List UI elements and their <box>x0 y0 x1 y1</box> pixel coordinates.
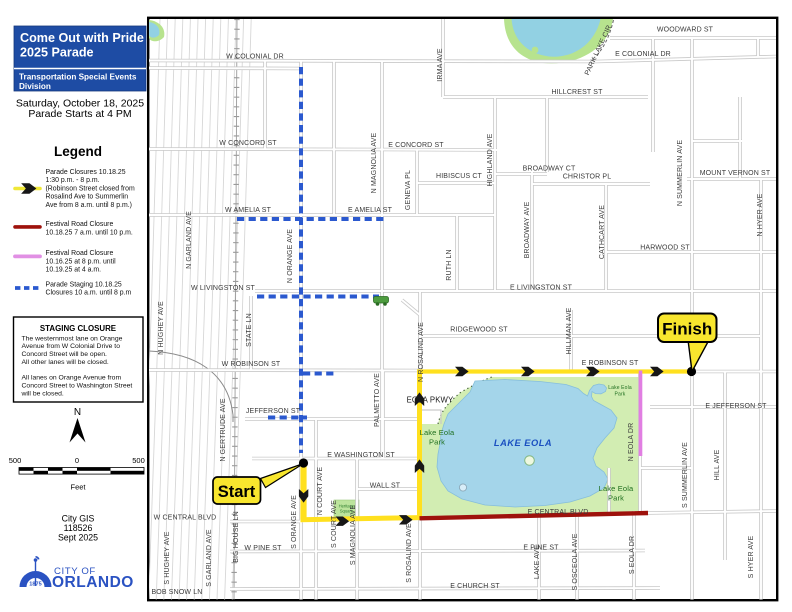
svg-text:S ORANGE AVE: S ORANGE AVE <box>291 495 298 549</box>
svg-text:500: 500 <box>132 456 145 465</box>
svg-text:N HUGHEY AVE: N HUGHEY AVE <box>158 301 165 355</box>
svg-text:IRMA AVE: IRMA AVE <box>437 48 444 82</box>
svg-text:N: N <box>74 407 81 418</box>
svg-text:Rosalind Ave to Summerlin: Rosalind Ave to Summerlin <box>46 194 129 201</box>
svg-text:BROADWAY AVE: BROADWAY AVE <box>524 201 531 258</box>
svg-text:HILLMAN AVE: HILLMAN AVE <box>566 307 573 354</box>
svg-text:N ROSALIND AVE: N ROSALIND AVE <box>418 322 425 382</box>
svg-text:W CONCORD ST: W CONCORD ST <box>219 140 277 147</box>
svg-text:Parade Staging 10.18.25: Parade Staging 10.18.25 <box>46 281 122 288</box>
svg-text:STATE LN: STATE LN <box>246 313 253 347</box>
svg-text:E COLONIAL DR: E COLONIAL DR <box>615 51 671 58</box>
svg-text:HIBISCUS CT: HIBISCUS CT <box>436 173 483 180</box>
svg-text:N SUMMERLIN AVE: N SUMMERLIN AVE <box>677 140 684 206</box>
svg-text:Concord Street to Washington S: Concord Street to Washington Street <box>22 383 133 390</box>
svg-text:E AMELIA ST: E AMELIA ST <box>348 207 393 214</box>
svg-text:LAKE AVE: LAKE AVE <box>534 545 541 579</box>
svg-text:S MAGNOLIA AVE: S MAGNOLIA AVE <box>350 505 357 566</box>
svg-text:JEFFERSON ST: JEFFERSON ST <box>246 408 301 415</box>
svg-text:Ave from 8 a.m. until 8 p.m.): Ave from 8 a.m. until 8 p.m.) <box>46 202 132 209</box>
svg-text:Lake Eola: Lake Eola <box>608 385 632 391</box>
svg-text:HILLCREST ST: HILLCREST ST <box>551 89 603 96</box>
svg-text:E JEFFERSON ST: E JEFFERSON ST <box>705 403 767 410</box>
svg-text:N EOLA DR: N EOLA DR <box>628 423 635 462</box>
svg-text:E PINE ST: E PINE ST <box>523 545 559 552</box>
svg-text:Concord Street will be open.: Concord Street will be open. <box>22 351 107 358</box>
svg-text:S ROSALIND AVE: S ROSALIND AVE <box>406 523 413 583</box>
svg-text:Finish: Finish <box>662 320 712 339</box>
svg-text:W LIVINGSTON ST: W LIVINGSTON ST <box>191 285 256 292</box>
svg-text:N GERTRUDE AVE: N GERTRUDE AVE <box>220 398 227 461</box>
svg-text:BOB SNOW LN: BOB SNOW LN <box>151 589 202 596</box>
svg-text:RUTH LN: RUTH LN <box>446 249 453 280</box>
svg-text:HILL AVE: HILL AVE <box>714 449 721 480</box>
svg-text:Lake Eola: Lake Eola <box>599 484 634 493</box>
svg-text:Come Out with Pride: Come Out with Pride <box>20 31 144 45</box>
svg-text:E CONCORD ST: E CONCORD ST <box>388 142 444 149</box>
svg-text:E LIVINGSTON ST: E LIVINGSTON ST <box>510 285 573 292</box>
svg-text:WALL ST: WALL ST <box>370 483 401 490</box>
svg-text:GENEVA PL: GENEVA PL <box>405 170 412 210</box>
svg-text:Feet: Feet <box>70 483 86 492</box>
svg-text:W COLONIAL DR: W COLONIAL DR <box>226 54 284 61</box>
svg-text:N ORANGE AVE: N ORANGE AVE <box>287 229 294 283</box>
svg-text:will be closed.: will be closed. <box>21 390 64 397</box>
svg-text:Start: Start <box>218 483 256 501</box>
svg-text:W PINE ST: W PINE ST <box>244 545 282 552</box>
svg-text:S HUGHEY AVE: S HUGHEY AVE <box>164 531 171 584</box>
svg-text:S SUMMERLIN AVE: S SUMMERLIN AVE <box>682 442 689 508</box>
svg-text:E CHURCH ST: E CHURCH ST <box>450 583 500 590</box>
svg-text:500: 500 <box>9 456 22 465</box>
svg-text:BIG HOUSE LN: BIG HOUSE LN <box>233 511 240 563</box>
svg-text:(Robinson Street closed from: (Robinson Street closed from <box>46 185 135 192</box>
svg-text:All lanes on Orange Avenue fro: All lanes on Orange Avenue from <box>22 375 122 382</box>
svg-text:CATHCART AVE: CATHCART AVE <box>599 205 606 259</box>
svg-text:Sept 2025: Sept 2025 <box>58 533 98 543</box>
svg-text:S HYER AVE: S HYER AVE <box>748 536 755 579</box>
svg-text:Transportation Special Events: Transportation Special Events <box>19 73 137 82</box>
svg-text:Festival Road Closure: Festival Road Closure <box>46 221 114 228</box>
svg-text:N COURT AVE: N COURT AVE <box>317 467 324 516</box>
svg-text:Closures 10 a.m. until 8 p.m: Closures 10 a.m. until 8 p.m <box>46 290 132 297</box>
svg-text:HIGHLAND AVE: HIGHLAND AVE <box>487 133 494 186</box>
svg-text:W AMELIA ST: W AMELIA ST <box>225 207 272 214</box>
svg-text:Parade Starts at 4 PM: Parade Starts at 4 PM <box>28 108 131 120</box>
svg-text:MOUNT VERNON ST: MOUNT VERNON ST <box>700 170 771 177</box>
svg-text:HARWOOD ST: HARWOOD ST <box>640 245 690 252</box>
svg-text:PALMETTO AVE: PALMETTO AVE <box>374 373 381 427</box>
svg-text:N MAGNOLIA AVE: N MAGNOLIA AVE <box>371 132 378 193</box>
svg-text:S OSCEOLA AVE: S OSCEOLA AVE <box>572 533 579 590</box>
svg-text:1:30 p.m. - 8 p.m.: 1:30 p.m. - 8 p.m. <box>46 177 100 184</box>
svg-text:E WASHINGTON ST: E WASHINGTON ST <box>327 452 395 459</box>
svg-text:WOODWARD ST: WOODWARD ST <box>657 27 714 34</box>
svg-text:W CENTRAL BLVD: W CENTRAL BLVD <box>154 515 217 522</box>
svg-text:E ROBINSON ST: E ROBINSON ST <box>582 360 639 367</box>
svg-text:ORLANDO: ORLANDO <box>52 574 134 591</box>
svg-text:EOLA PKWY: EOLA PKWY <box>407 396 454 405</box>
svg-text:W ROBINSON ST: W ROBINSON ST <box>222 361 281 368</box>
svg-text:The westernmost lane on Orange: The westernmost lane on Orange <box>22 335 123 342</box>
svg-text:City GIS: City GIS <box>62 514 95 524</box>
svg-text:CHRISTOR PL: CHRISTOR PL <box>563 174 612 181</box>
svg-text:Park: Park <box>608 494 624 503</box>
svg-text:Avenue from W Colonial Drive t: Avenue from W Colonial Drive to <box>22 343 121 350</box>
svg-text:N GARLAND AVE: N GARLAND AVE <box>186 211 193 269</box>
svg-text:All other lanes will be closed: All other lanes will be closed. <box>22 359 109 366</box>
svg-text:1875: 1875 <box>29 582 41 588</box>
svg-text:0: 0 <box>75 456 79 465</box>
svg-text:LAKE EOLA: LAKE EOLA <box>494 438 552 448</box>
svg-text:RIDGEWOOD ST: RIDGEWOOD ST <box>450 327 508 334</box>
svg-text:118526: 118526 <box>64 523 93 533</box>
svg-text:N HYER AVE: N HYER AVE <box>757 193 764 236</box>
svg-text:Legend: Legend <box>54 144 102 159</box>
svg-text:10.19.25 at 4 a.m.: 10.19.25 at 4 a.m. <box>46 267 102 274</box>
svg-text:Parade Closures 10.18.25: Parade Closures 10.18.25 <box>46 169 126 176</box>
svg-text:Festival Road Closure: Festival Road Closure <box>46 250 114 257</box>
svg-text:Park: Park <box>615 392 626 398</box>
svg-text:Division: Division <box>19 82 51 91</box>
svg-text:10.18.25 7 a.m. until 10 p.m.: 10.18.25 7 a.m. until 10 p.m. <box>46 229 133 236</box>
svg-text:Park: Park <box>429 438 445 447</box>
svg-text:S GARLAND AVE: S GARLAND AVE <box>206 529 213 587</box>
svg-text:S EOLA DR: S EOLA DR <box>629 536 636 574</box>
svg-text:2025 Parade: 2025 Parade <box>20 46 94 60</box>
svg-text:STAGING CLOSURE: STAGING CLOSURE <box>40 324 116 333</box>
svg-text:Lake Eola: Lake Eola <box>420 428 455 437</box>
svg-text:E CENTRAL BLVD: E CENTRAL BLVD <box>528 509 589 516</box>
svg-text:BROADWAY CT: BROADWAY CT <box>523 166 576 173</box>
svg-text:S COURT AVE: S COURT AVE <box>331 500 338 548</box>
svg-text:10.16.25 at 8 p.m. until: 10.16.25 at 8 p.m. until <box>46 258 117 265</box>
